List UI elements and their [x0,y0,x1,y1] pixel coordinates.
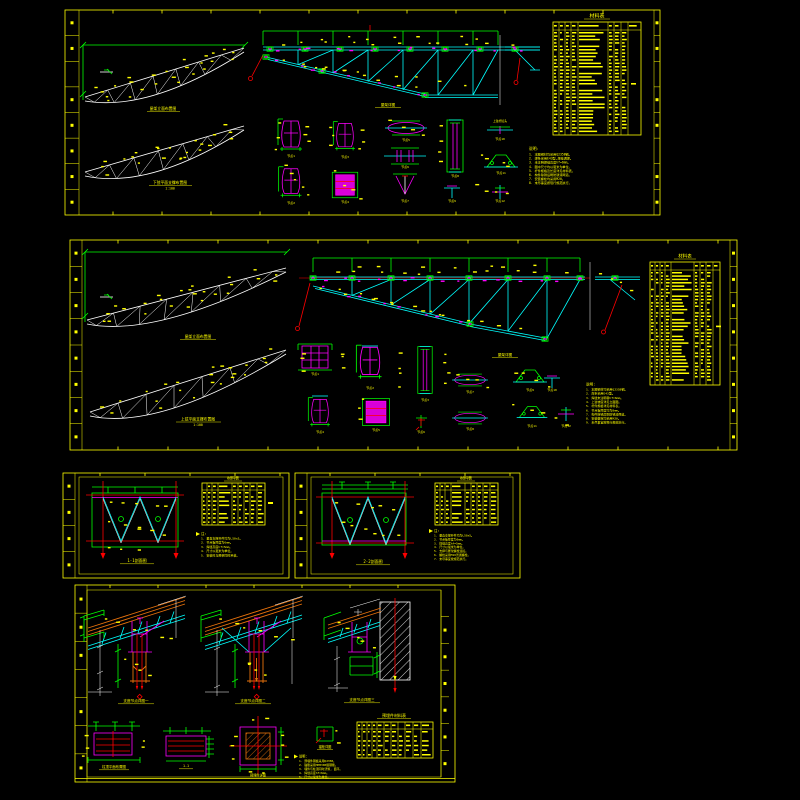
p2-plan-label: 上弦平面支撑布置图 [181,417,215,422]
p5-table-title: 预埋件材料表 [382,712,406,718]
detail-label: 节点5 [402,137,410,142]
detail-label: 节点6 [401,164,409,169]
detail-label: 节点7 [401,198,409,203]
sheet2-right-strip [730,240,737,450]
sheet2-binding-strip [70,240,82,450]
p5-detail2-label: 支座节点详图二 [240,698,266,703]
sheet5-support-details: 支座节点详图一 支座节点详图二 支座节点详图三 [75,585,455,782]
p1-node-details: 上弦杆接头 节点1 节点2 节点3 节点4 节点5 节点6 节点7 节点8 节点… [278,119,518,205]
detail-label: 节点6 [417,429,425,434]
p5-support-detail-1: 支座节点详图一 [80,596,186,704]
sheet2-border [70,240,737,450]
p5-plan2-label: 1-1 [183,764,189,768]
p5-detail1-label: 支座节点详图一 [123,698,149,703]
p5-plan-detail-2: 1-1 [163,727,214,769]
sheet1-right-strip [654,10,660,215]
detail-label: 节点10 [495,136,505,141]
sheet4-binding-strip [295,473,307,578]
p3-section-drawing: 1-1剖面图 [86,481,184,564]
p1-elevation-label: 屋架立面布置图 [150,106,177,111]
detail-label: 节点2 [366,385,374,390]
detail-label: 节点3 [341,154,349,159]
cad-canvas: 屋架立面布置图 下弦平面支撑布置图 1:100 屋架详图 上弦杆接头 节点1 节… [0,0,800,800]
detail-label: 节点2 [287,200,295,205]
p2-detailed-truss: 屋架详图 [296,258,641,358]
p5-embed-plate-detail: 预埋件详图 [229,716,287,778]
p5-notes: 1. 预埋件钢板采用Q235B。2. 锚筋采用HPB300级钢筋。3. 埋件与柱… [299,758,342,779]
p1-elevation-dimension [80,42,248,100]
p1-table-title: 材料表 [589,13,604,20]
p2-detail-truss-label: 屋架详图 [498,352,513,357]
p3-table-title: 材料表 [227,475,239,481]
drawing-sheet-set: 屋架立面布置图 下弦平面支撑布置图 1:100 屋架详图 上弦杆接头 节点1 节… [0,0,800,800]
note-line: 7. 未尽事宜按规范执行。 [434,556,468,561]
detail-label: 节点8 [466,426,474,431]
note-line: 9. 未尽事宜按现行规范执行。 [586,420,627,425]
p2-notes-title: 说明: [586,382,595,387]
detail-label: 节点4 [316,429,324,434]
p2-notes: 1. 本图钢材均采用Q235B钢。2. 焊条采用E43型。3. 焊缝未注明者hf… [586,387,627,425]
sheet3-section-1: 1-1剖面图 材料表 注: 1. 垂直支撑杆件均为L50x5。2. 节点板厚度为… [63,473,289,578]
sheet1-roof-truss-1: 屋架立面布置图 下弦平面支撑布置图 1:100 屋架详图 上弦杆接头 节点1 节… [65,10,660,215]
note-line: 8. 未尽事宜按现行规范执行。 [529,180,572,185]
detail-label: 节点7 [466,389,474,394]
p3-notes-title: 注: [201,531,206,536]
p1-notes-title: 说明: [529,146,539,151]
detail-label: 节点4 [341,199,349,204]
detail-label: 节点1 [287,153,295,158]
p3-material-table [202,483,265,525]
detail-label: 节点1 [311,371,319,376]
p3-notes: 1. 垂直支撑杆件均为L50x5。2. 节点板厚度为6mm。3. 焊缝高度hf=… [201,536,242,558]
p1-truss-elevation [85,48,244,103]
p4-section-drawing: 2-2剖面图 [316,481,414,565]
sheet3-binding-strip [63,473,75,578]
detail-label: 节点11 [496,170,506,175]
p1-truss-plan [85,124,244,179]
p5-plan-detail-1: 柱顶平面布置图 [88,722,140,770]
p5-anchor-detail: 锚栓详图 [316,727,333,750]
sheet4-section-2: 2-2剖面图 材料表 注: 1. 垂直支撑杆件均为L50x5。2. 节点板厚度为… [295,473,520,578]
note-line: 5. 安装时与屋架同时吊装。 [201,552,239,557]
detail-label: 节点9 [448,198,456,203]
p1-notes: 1. 本图钢材均采用Q235B钢。2. 焊条采用E43型,焊缝满焊。3. 未注明… [529,152,575,186]
p5-embed-table [357,722,433,758]
p5-support-detail-3: 支座节点详图三 [324,598,410,703]
sheet3-border-ticks [100,473,280,476]
sheet5-border-ticks [110,585,398,588]
p3-section-label: 1-1剖面图 [127,557,146,563]
detail-label: 节点3 [421,397,429,402]
detail-label: 节点9 [526,387,534,392]
p5-plan1-label: 柱顶平面布置图 [102,764,126,769]
p5-anchor-label: 锚栓详图 [319,744,332,749]
detail-label: 节点11 [527,423,537,428]
detail-label: 节点5 [372,427,380,432]
p4-notes: 1. 垂直支撑杆件均为L50x5。2. 节点板厚度为6mm。3. 焊缝高度hf=… [434,533,474,561]
p4-notes-title: 注: [434,528,439,533]
p1-plan-label: 下弦平面支撑布置图 [153,180,187,185]
sheet2-roof-truss-2: 屋架立面布置图 上弦平面支撑布置图 1:100 屋架详图 节点1 节点2 节点3 [70,240,737,450]
sheet4-border-ticks [330,473,510,476]
p2-elevation-label: 屋架立面布置图 [185,334,212,339]
p5-notes-title: 说明: [299,754,307,759]
p1-plan-scale: 1:100 [165,187,175,191]
p2-truss-elevation [87,268,286,326]
note-line: 5. 尺寸以毫米为单位。 [299,774,330,779]
p2-node-details: 节点1 节点2 节点3 节点4 节点5 节点6 节点7 节点8 节点9 节点10… [298,344,574,434]
p5-support-detail-2: 支座节点详图二 [201,596,303,704]
p2-truss-plan [90,348,286,418]
p4-section-label: 2-2剖面图 [363,558,382,564]
detail-label: 节点12 [495,198,505,203]
detail-label: 节点8 [451,173,459,178]
p2-material-table [650,262,721,385]
p1-material-table [553,22,641,135]
p4-table-title: 材料表 [460,475,472,481]
p5-detail3-label: 支座节点详图三 [349,697,375,702]
p2-plan-scale: 1:100 [193,423,203,427]
sheet5-binding-strip [75,585,87,782]
p2-table-title: 材料表 [678,253,692,260]
sheet1-binding-strip [65,10,79,215]
p1-chord-note: 上弦杆接头 [493,119,507,123]
p4-material-table [435,483,498,525]
detail-label: 节点10 [547,387,557,392]
p1-detail-truss-label: 屋架详图 [381,102,396,107]
sheet5-right-strip [441,590,449,777]
